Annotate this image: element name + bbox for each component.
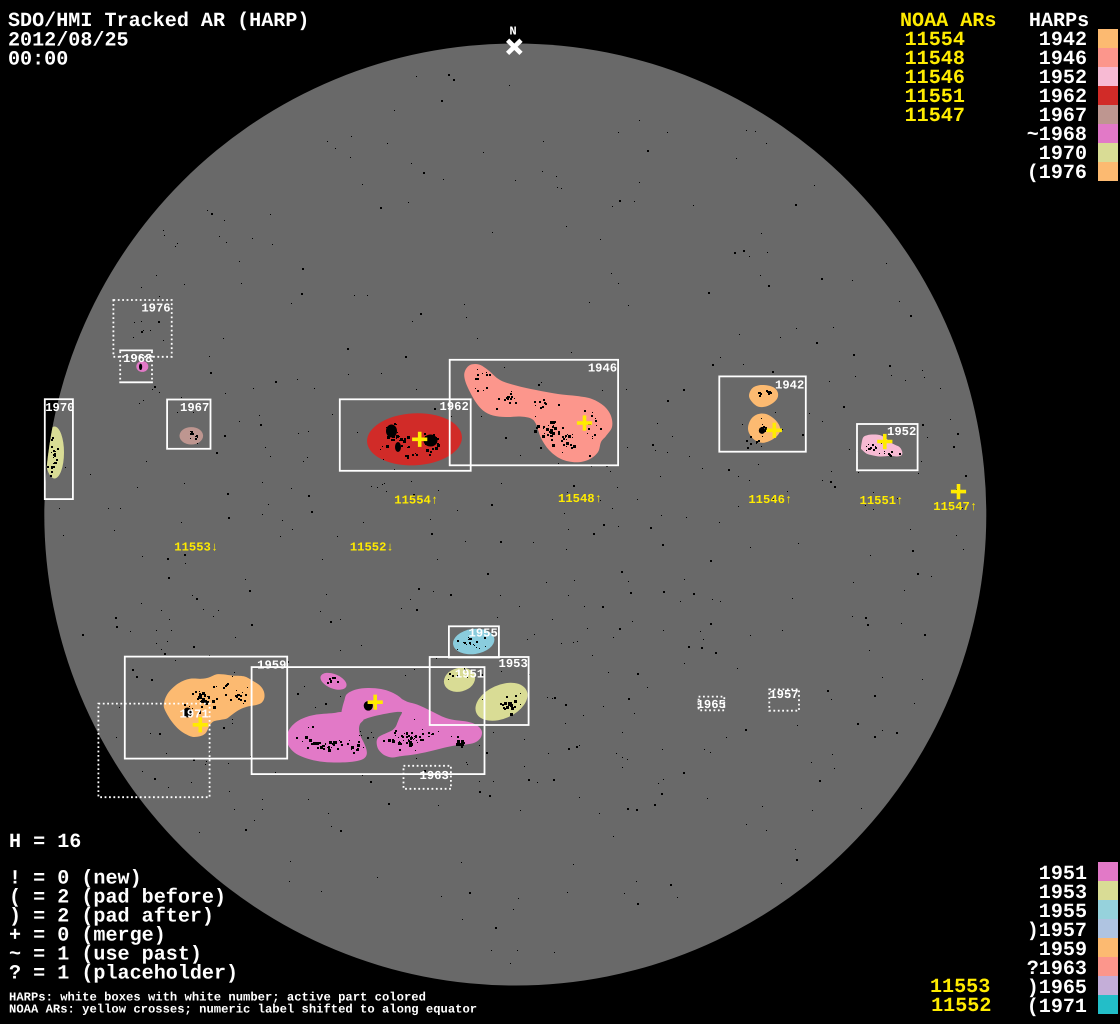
svg-text:1953: 1953 [499,657,528,671]
svg-text:? = 1 (placeholder): ? = 1 (placeholder) [9,963,238,986]
svg-text:H = 16: H = 16 [9,831,81,854]
svg-text:1963: 1963 [420,769,449,783]
svg-text:1957: 1957 [769,688,798,702]
svg-text:00:00: 00:00 [8,49,68,72]
svg-text:1946: 1946 [588,361,617,375]
svg-text:11552↓: 11552↓ [350,541,394,555]
svg-text:1942: 1942 [775,378,804,392]
svg-text:11551↑: 11551↑ [860,494,904,508]
svg-text:11547↑: 11547↑ [933,500,977,514]
svg-text:1955: 1955 [469,627,498,641]
svg-text:1965: 1965 [697,698,726,712]
svg-text:1971: 1971 [180,708,209,722]
svg-text:1976: 1976 [141,301,170,315]
svg-text:1952: 1952 [887,425,916,439]
svg-text:11553↓: 11553↓ [174,541,218,555]
svg-text:(1976: (1976 [1027,162,1087,185]
svg-text:1967: 1967 [180,401,209,415]
svg-text:N: N [509,25,516,39]
svg-text:(1971: (1971 [1027,996,1087,1019]
svg-text:1951: 1951 [455,667,484,681]
svg-text:NOAA ARs: yellow crosses; nume: NOAA ARs: yellow crosses; numeric label … [9,1002,477,1016]
svg-text:1962: 1962 [440,400,469,414]
svg-text:1970: 1970 [45,401,74,415]
svg-text:11552: 11552 [931,995,991,1018]
svg-text:1959: 1959 [257,658,286,672]
svg-text:1968: 1968 [123,352,152,366]
svg-text:11546↑: 11546↑ [748,493,792,507]
svg-text:11547: 11547 [905,105,965,128]
svg-text:11548↑: 11548↑ [558,492,602,506]
svg-text:11554↑: 11554↑ [394,493,438,507]
